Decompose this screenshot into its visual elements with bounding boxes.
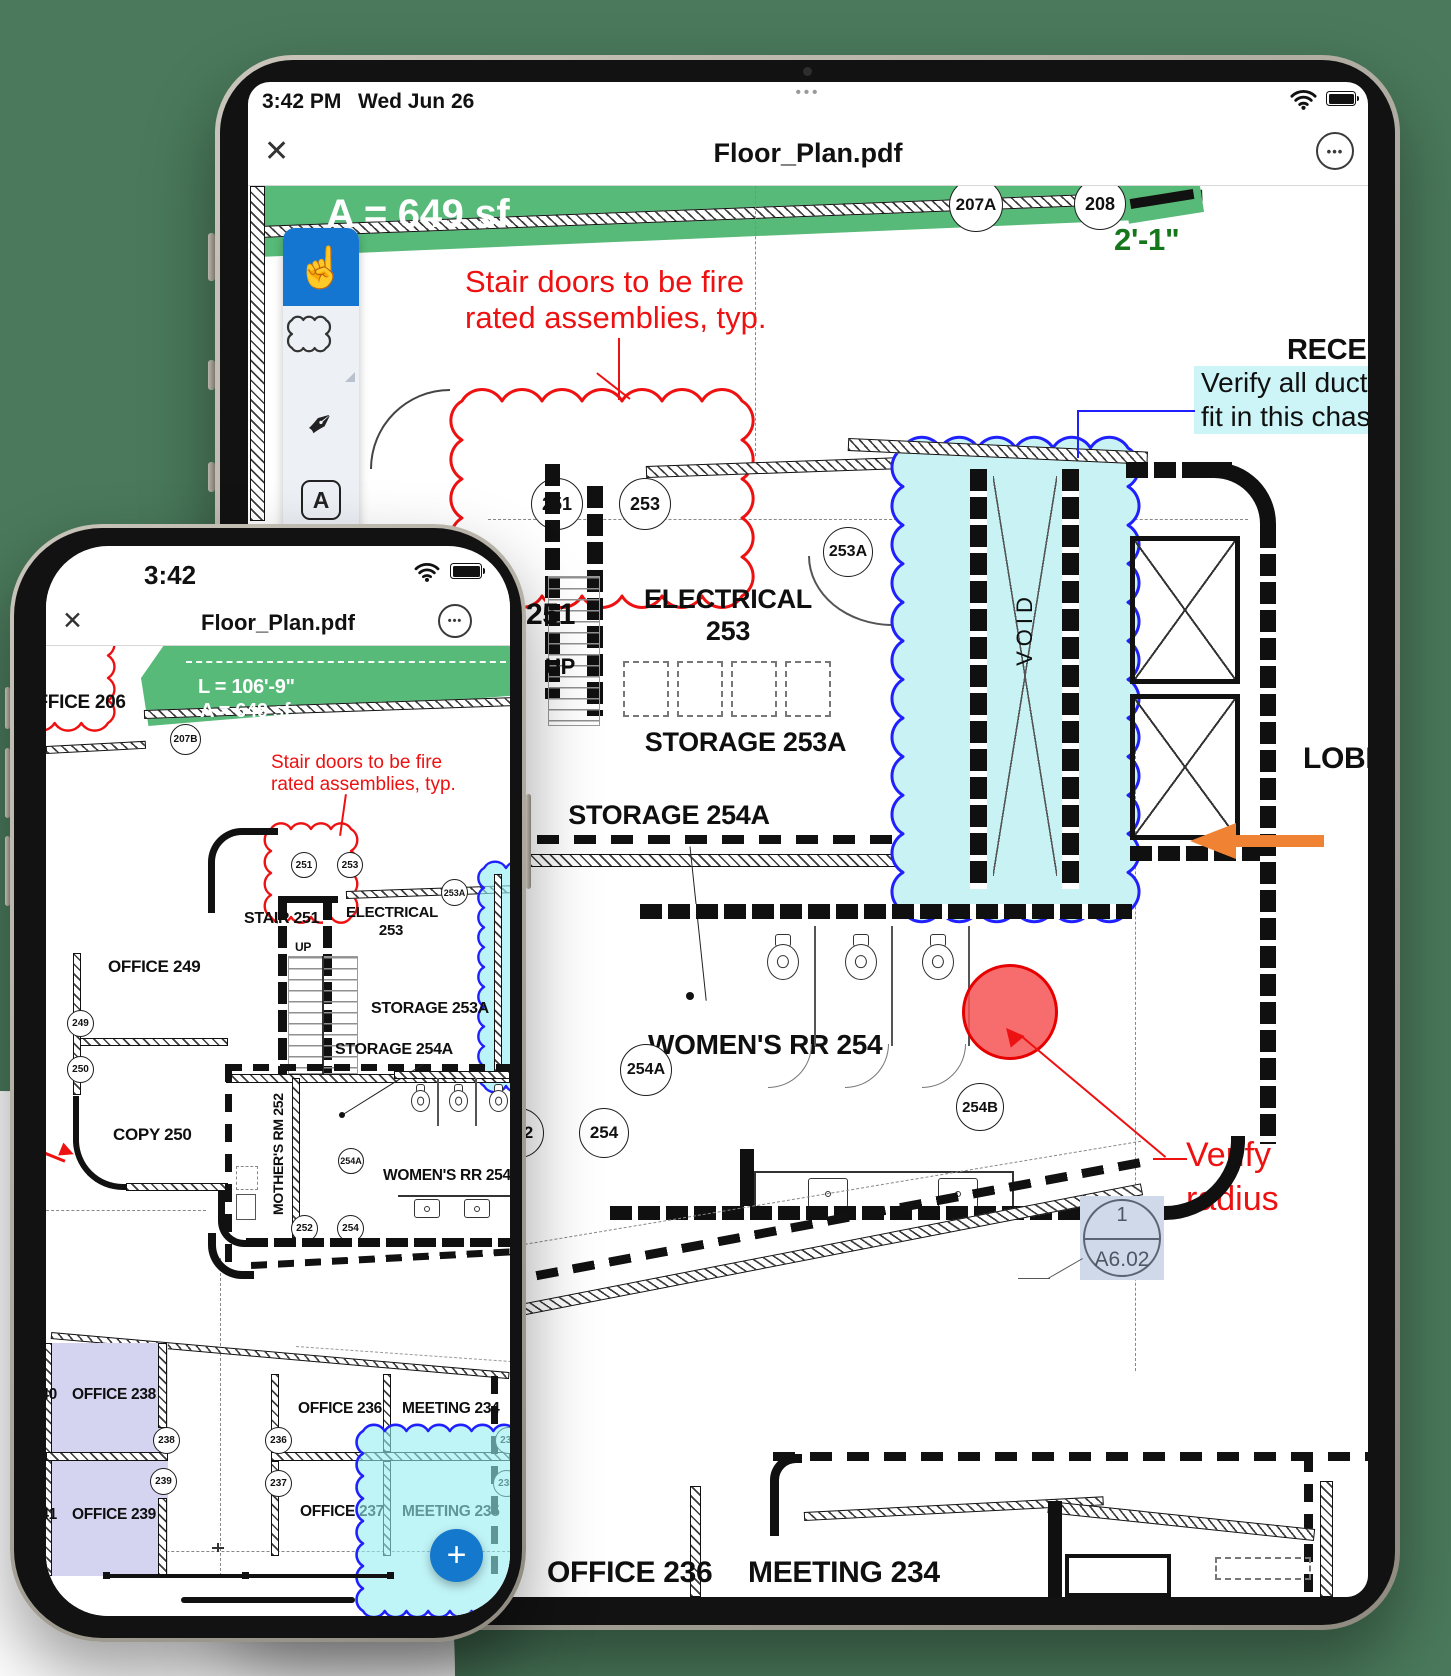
- centerline-tick: [217, 1543, 219, 1552]
- room-label-storage254a: STORAGE 254A: [563, 800, 775, 831]
- wall: [292, 1078, 300, 1238]
- detail-callout: 1 A6.02: [1080, 1196, 1164, 1280]
- door-tag: 239: [150, 1468, 177, 1495]
- toilet-fixture: [845, 934, 875, 978]
- equip-panel: [785, 661, 831, 717]
- callout-number: 1: [1080, 1204, 1164, 1227]
- iphone-volume-button: [5, 748, 10, 818]
- pen-tool-icon: ✒: [297, 400, 345, 449]
- wall: [250, 186, 265, 521]
- room-label-lobby: LOBBY: [1303, 742, 1368, 776]
- door-arc: [768, 1044, 812, 1088]
- iphone-volume-button: [5, 836, 10, 906]
- demising-wall-dashed: [251, 1248, 510, 1269]
- meeting235-highlight-cloud-blue: [341, 1409, 510, 1616]
- annotation-duct-note-line1: Verify all ducting w: [1194, 366, 1368, 400]
- iphone-action-button: [5, 687, 10, 729]
- elevator-shaft: [1130, 536, 1240, 684]
- door-tag: 253: [337, 852, 363, 878]
- wall-tick: [103, 1572, 110, 1579]
- door-tag: 254B: [956, 1083, 1004, 1131]
- dashed-box: [1215, 1557, 1311, 1580]
- equip-panel: [623, 661, 669, 717]
- iphone-screen[interactable]: 3:42 ✕ Floor_Plan.pdf ••• L = 106'-9" A …: [46, 546, 510, 1616]
- door-tag: 254A: [620, 1044, 672, 1096]
- wifi-icon: [414, 562, 440, 582]
- tool-hand-button[interactable]: ☝: [283, 228, 359, 306]
- equip-panel: [677, 661, 723, 717]
- ref-line: [220, 1258, 221, 1576]
- demising-wall-dashed: [500, 835, 928, 844]
- orange-arrow-icon: [1190, 823, 1236, 859]
- room-label-copy250: COPY 250: [113, 1125, 192, 1145]
- wall: [78, 1038, 228, 1046]
- door-tag: 254: [579, 1108, 629, 1158]
- wifi-icon: [1290, 89, 1317, 110]
- door-tag: 237: [265, 1470, 292, 1497]
- stall-part: [475, 1078, 477, 1126]
- annotation-duct-note-line2: fit in this chase: [1194, 400, 1368, 434]
- stall-part: [814, 926, 816, 1046]
- wall-tick: [387, 1572, 394, 1579]
- annotation-fire-note-line2: rated assemblies, typ.: [271, 774, 456, 796]
- hand-tool-icon: ☝: [296, 244, 346, 291]
- door-tag: 251: [291, 852, 317, 878]
- stall-part: [891, 926, 893, 1046]
- callout-sheet: A6.02: [1080, 1248, 1164, 1272]
- ipad-status-time: 3:42 PM: [262, 90, 341, 114]
- tool-pen-button[interactable]: ✒: [283, 386, 359, 462]
- demising-wall-dashed: [226, 1064, 510, 1071]
- toilet-fixture: [922, 934, 952, 978]
- wall: [500, 854, 928, 867]
- room-label-storage253a: STORAGE 253A: [371, 1000, 489, 1018]
- toilet-fixture: [411, 1084, 428, 1110]
- room-box: [1065, 1554, 1171, 1597]
- wall-corner: [770, 1454, 802, 1536]
- wall: [640, 904, 1132, 919]
- wall-corner: [208, 828, 278, 913]
- counter: [398, 1195, 510, 1197]
- door-tag: 207B: [170, 724, 201, 755]
- room-label-electrical: ELECTRICAL: [346, 904, 436, 921]
- room-label-office249: OFFICE 249: [108, 957, 200, 977]
- room-label-electrical-num: 253: [346, 922, 436, 939]
- void-label: VOID: [1012, 564, 1038, 694]
- dim-label: 2'-1": [1114, 222, 1179, 258]
- iphone-plan-canvas[interactable]: L = 106'-9" A = 649 sf OFFICE 206 207B S…: [46, 646, 510, 1616]
- leader-dot: [686, 992, 694, 1000]
- battery-icon: [450, 563, 482, 579]
- door-tag: 236: [265, 1427, 292, 1454]
- wall: [126, 1183, 228, 1191]
- iphone-power-button: [526, 794, 531, 889]
- wall: [394, 1071, 510, 1079]
- door-tag: 249: [67, 1010, 94, 1037]
- stall-part: [437, 1078, 439, 1126]
- room-label-electrical: ELECTRICAL: [643, 584, 813, 615]
- door-tag: 238: [153, 1427, 180, 1454]
- banner-area-label: A = 649 sf: [200, 700, 290, 723]
- toilet-fixture: [489, 1084, 506, 1110]
- wall: [494, 874, 502, 1082]
- room-label-office240: 240: [46, 1386, 57, 1404]
- wall: [46, 1452, 168, 1461]
- tool-cloud-button[interactable]: [283, 306, 359, 386]
- leader-line: [1077, 410, 1079, 458]
- up-label: UP: [545, 654, 575, 680]
- room-label-251: 251: [526, 598, 575, 632]
- equip-panel: [731, 661, 777, 717]
- text-tool-icon: A: [301, 480, 341, 520]
- wall: [158, 1498, 167, 1576]
- wall: [1047, 1501, 1315, 1541]
- sink: [414, 1199, 440, 1218]
- plus-icon: +: [447, 1536, 467, 1575]
- wall-corner: [208, 1233, 254, 1279]
- room-label-womens: WOMEN'S RR 254: [648, 1029, 863, 1061]
- leader-line: [690, 846, 707, 1000]
- add-annotation-fab[interactable]: +: [430, 1529, 483, 1582]
- demising-wall-dashed: [773, 1452, 1368, 1461]
- door-tag: 253: [619, 478, 671, 530]
- iphone-status-time: 3:42: [144, 560, 196, 591]
- leader-dot: [339, 1112, 345, 1118]
- elevator-shaft: [1130, 694, 1240, 840]
- door-arc: [845, 1044, 889, 1088]
- door-arc: [922, 1044, 966, 1088]
- annotation-toolbar: ☝ ✒ A: [283, 228, 359, 543]
- ipad-camera-icon: [803, 67, 812, 76]
- annotation-fire-note-line1: Stair doors to be fire: [271, 752, 442, 774]
- room-label-stair251: STAIR 251: [244, 910, 319, 928]
- room-label-mothers: MOTHER'S RM 252: [270, 1083, 288, 1215]
- room-label-electrical-num: 253: [643, 616, 813, 647]
- submenu-indicator-icon: [345, 372, 355, 382]
- casework: [236, 1166, 258, 1190]
- home-indicator[interactable]: [181, 1597, 355, 1603]
- wall-tick: [242, 1572, 249, 1579]
- stair-rail: [322, 956, 324, 1074]
- room-label-office236: OFFICE 236: [547, 1556, 712, 1590]
- room-label-office239: OFFICE 239: [72, 1506, 156, 1524]
- toilet-fixture: [767, 934, 797, 978]
- toilet-fixture: [449, 1084, 466, 1110]
- leader-line: [1019, 1034, 1166, 1158]
- room-label-office241: 241: [46, 1506, 57, 1524]
- ipad-volume-button: [208, 233, 215, 281]
- room-label-reception: RECEPTION: [1287, 334, 1368, 367]
- door-tag: 250: [67, 1056, 94, 1083]
- wall: [970, 469, 987, 889]
- leader-line: [1077, 410, 1195, 412]
- ipad-status-date: Wed Jun 26: [358, 90, 474, 114]
- door-tag: 254A: [338, 1148, 364, 1174]
- wall: [246, 1238, 510, 1247]
- up-label: UP: [295, 940, 311, 954]
- ipad-more-button[interactable]: •••: [1316, 132, 1354, 170]
- wall: [158, 1343, 167, 1428]
- battery-icon: [1326, 91, 1356, 106]
- ipad-multitask-handle-icon[interactable]: •••: [796, 84, 821, 101]
- room-label-office206: OFFICE 206: [46, 692, 126, 714]
- ipad-doc-title: Floor_Plan.pdf: [248, 138, 1368, 169]
- ipad-volume-button: [208, 360, 215, 390]
- annotation-fire-note-line1: Stair doors to be fire: [465, 264, 744, 300]
- ref-line: [46, 1210, 206, 1211]
- orange-arrow-shaft: [1232, 835, 1324, 847]
- ipad-volume-button: [208, 462, 215, 492]
- banner-len-label: L = 106'-9": [198, 676, 295, 699]
- banner-dash: [186, 661, 506, 663]
- room-label-meeting234: MEETING 234: [748, 1556, 940, 1590]
- sink: [464, 1199, 490, 1218]
- wall: [1062, 469, 1079, 889]
- room-label-womens: WOMEN'S RR 254: [383, 1167, 510, 1185]
- wall: [1320, 1481, 1333, 1597]
- wall: [1048, 1501, 1062, 1597]
- annotation-fire-note-line2: rated assemblies, typ.: [465, 300, 767, 336]
- iphone-more-button[interactable]: •••: [438, 604, 472, 638]
- room-label-storage253a: STORAGE 253A: [638, 727, 853, 758]
- room-label-office238: OFFICE 238: [72, 1386, 156, 1404]
- leader-line: [1018, 1278, 1050, 1279]
- leader-line: [1048, 1258, 1083, 1279]
- room-label-storage254a: STORAGE 254A: [335, 1041, 453, 1059]
- iphone-device: 3:42 ✕ Floor_Plan.pdf ••• L = 106'-9" A …: [10, 524, 526, 1642]
